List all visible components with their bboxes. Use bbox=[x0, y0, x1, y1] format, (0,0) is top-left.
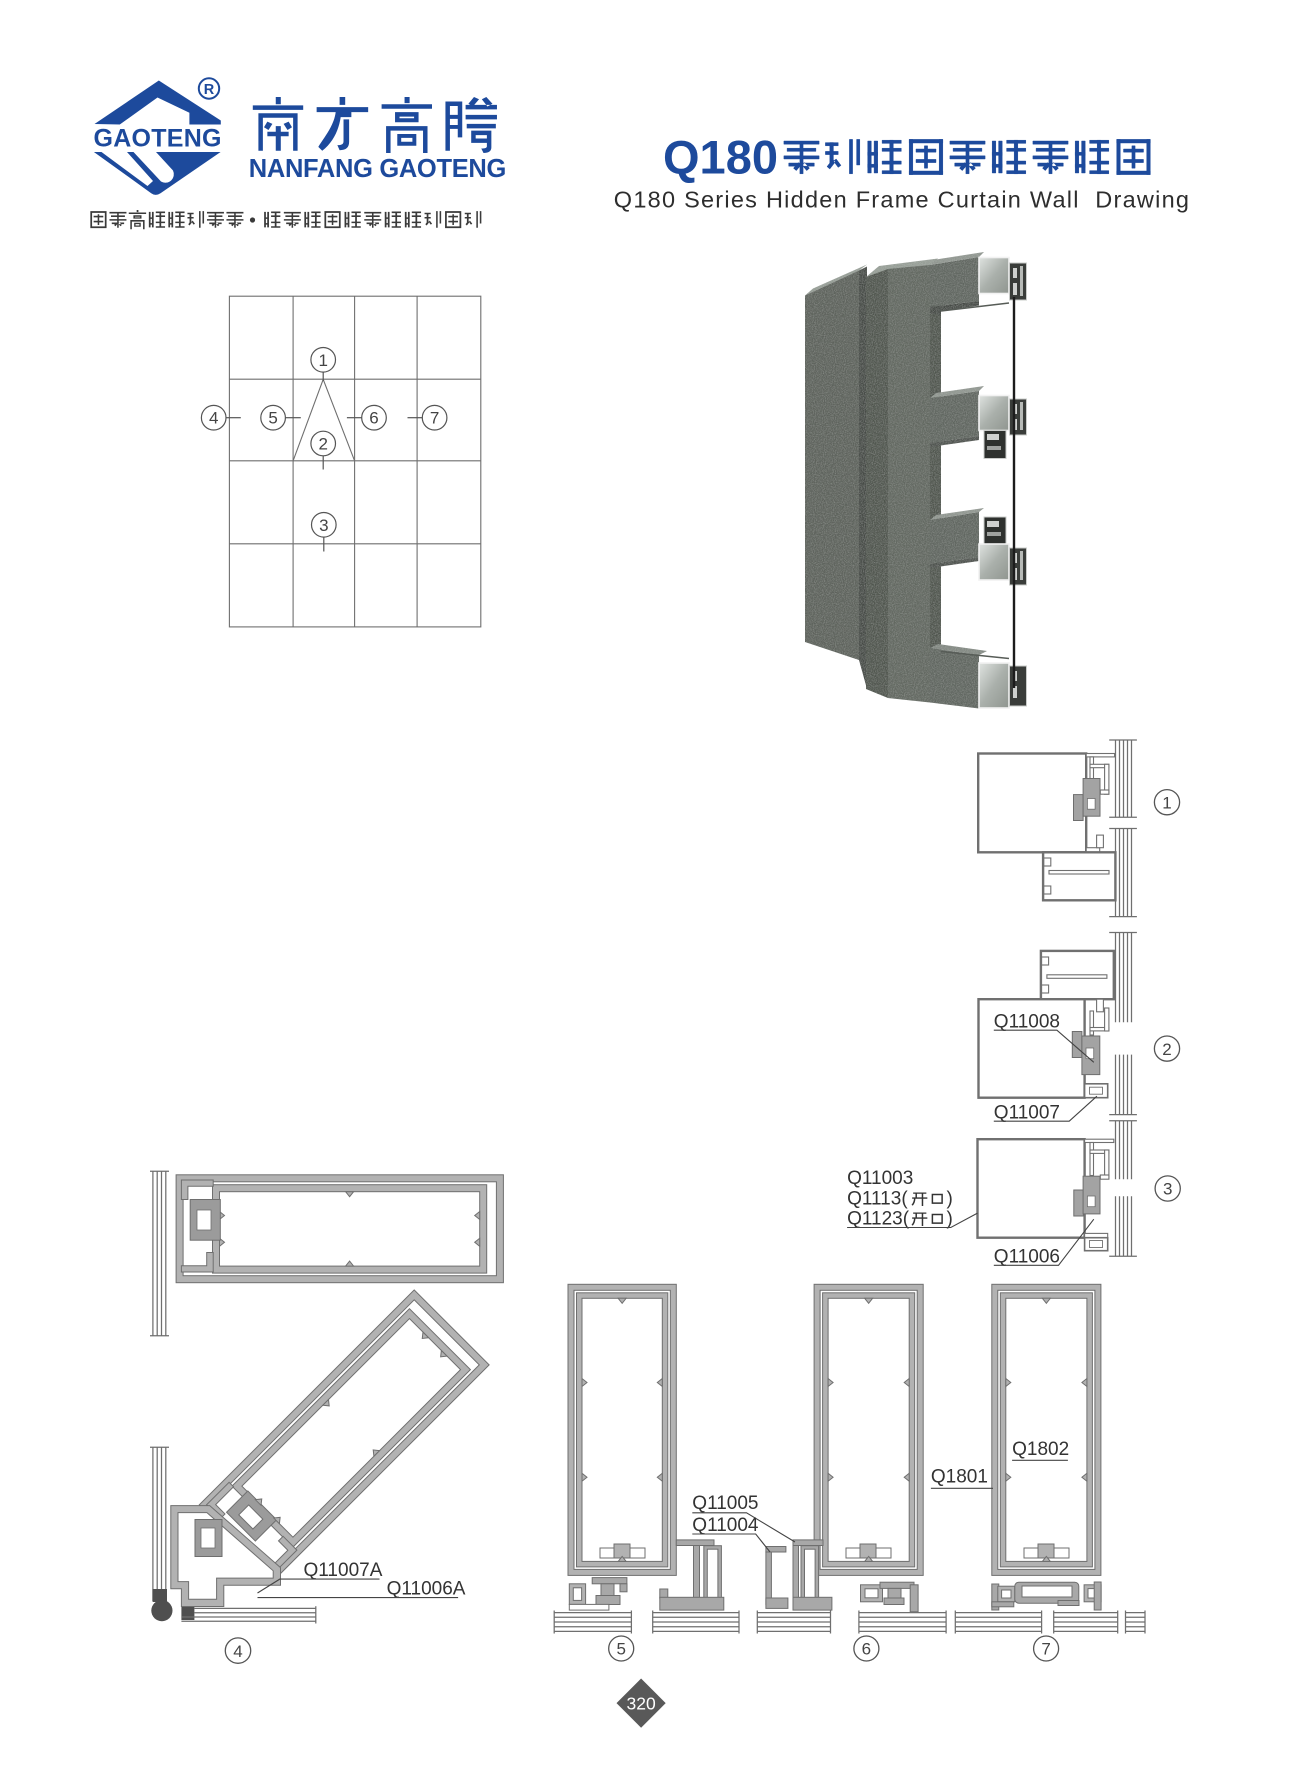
svg-text:6: 6 bbox=[862, 1640, 871, 1659]
svg-text:Q1802: Q1802 bbox=[1012, 1439, 1069, 1460]
svg-text:R: R bbox=[204, 82, 215, 98]
svg-text:7: 7 bbox=[430, 409, 439, 428]
svg-text:6: 6 bbox=[369, 409, 378, 428]
svg-text:5: 5 bbox=[616, 1640, 625, 1659]
svg-text:Q11003: Q11003 bbox=[847, 1168, 913, 1189]
svg-text:1: 1 bbox=[1162, 793, 1171, 812]
svg-text:4: 4 bbox=[209, 409, 218, 428]
svg-text:2: 2 bbox=[1162, 1040, 1171, 1059]
svg-text:7: 7 bbox=[1041, 1640, 1050, 1659]
svg-text:Q11004: Q11004 bbox=[692, 1515, 759, 1536]
svg-text:5: 5 bbox=[268, 409, 277, 428]
svg-text:Q11006: Q11006 bbox=[994, 1246, 1060, 1267]
svg-text:Q11005: Q11005 bbox=[692, 1493, 758, 1514]
svg-text:Q11008: Q11008 bbox=[994, 1011, 1060, 1032]
svg-text:Q11007A: Q11007A bbox=[304, 1560, 383, 1581]
svg-text:3: 3 bbox=[1163, 1180, 1172, 1199]
svg-text:GAOTENG: GAOTENG bbox=[94, 125, 222, 153]
svg-text:Q11007: Q11007 bbox=[994, 1102, 1060, 1123]
svg-text:): ) bbox=[947, 1189, 953, 1210]
svg-text:1: 1 bbox=[318, 351, 327, 370]
svg-text:3: 3 bbox=[319, 516, 328, 535]
svg-text:Q180 Series Hidden Frame Curta: Q180 Series Hidden Frame Curtain Wall Dr… bbox=[614, 187, 1190, 213]
svg-text:Q1123(: Q1123( bbox=[847, 1209, 910, 1230]
svg-text:4: 4 bbox=[233, 1642, 242, 1661]
svg-text:320: 320 bbox=[626, 1694, 655, 1714]
svg-text:Q180: Q180 bbox=[663, 131, 778, 184]
svg-text:Q1801: Q1801 bbox=[931, 1467, 988, 1488]
svg-text:NANFANG GAOTENG: NANFANG GAOTENG bbox=[249, 155, 507, 183]
svg-text:2: 2 bbox=[318, 435, 327, 454]
svg-text:Q11006A: Q11006A bbox=[387, 1579, 466, 1600]
svg-text:Q1113(: Q1113( bbox=[847, 1189, 908, 1210]
